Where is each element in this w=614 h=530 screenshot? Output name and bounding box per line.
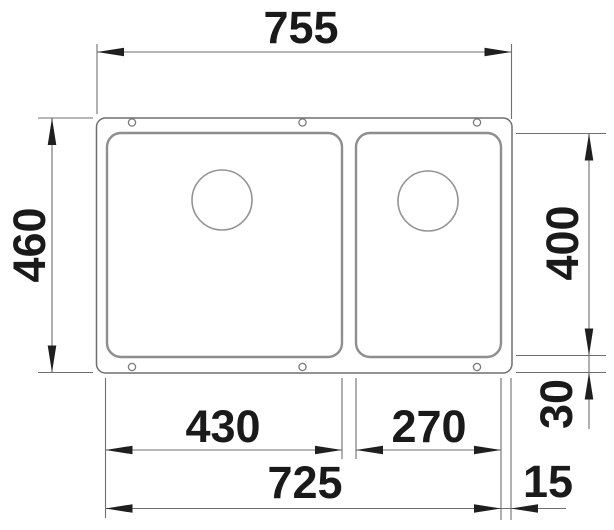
right-bowl <box>356 133 501 357</box>
left-bowl <box>107 133 342 357</box>
sink-outline-group <box>97 118 513 373</box>
bottom-extension-lines <box>106 378 512 520</box>
clamp-hole <box>128 363 135 370</box>
clamp-holes-group <box>128 119 480 371</box>
clamp-hole <box>299 363 306 370</box>
sink-bowls-group <box>107 133 501 357</box>
drain-holes-group <box>192 170 458 231</box>
sink-outer-rim <box>97 118 513 373</box>
right-drain-circle <box>398 171 458 231</box>
dim-overall-width <box>97 44 512 119</box>
left-drain-circle <box>192 170 252 230</box>
sink-dimension-drawing: 755 460 400 30 430 270 725 15 <box>0 0 614 530</box>
clamp-hole <box>128 119 135 126</box>
clamp-hole <box>299 119 306 126</box>
drawing-canvas <box>0 0 614 530</box>
dim-overall-depth <box>38 118 93 373</box>
dim-bowl-depth <box>516 134 606 430</box>
clamp-hole <box>473 363 480 370</box>
clamp-hole <box>473 119 480 126</box>
